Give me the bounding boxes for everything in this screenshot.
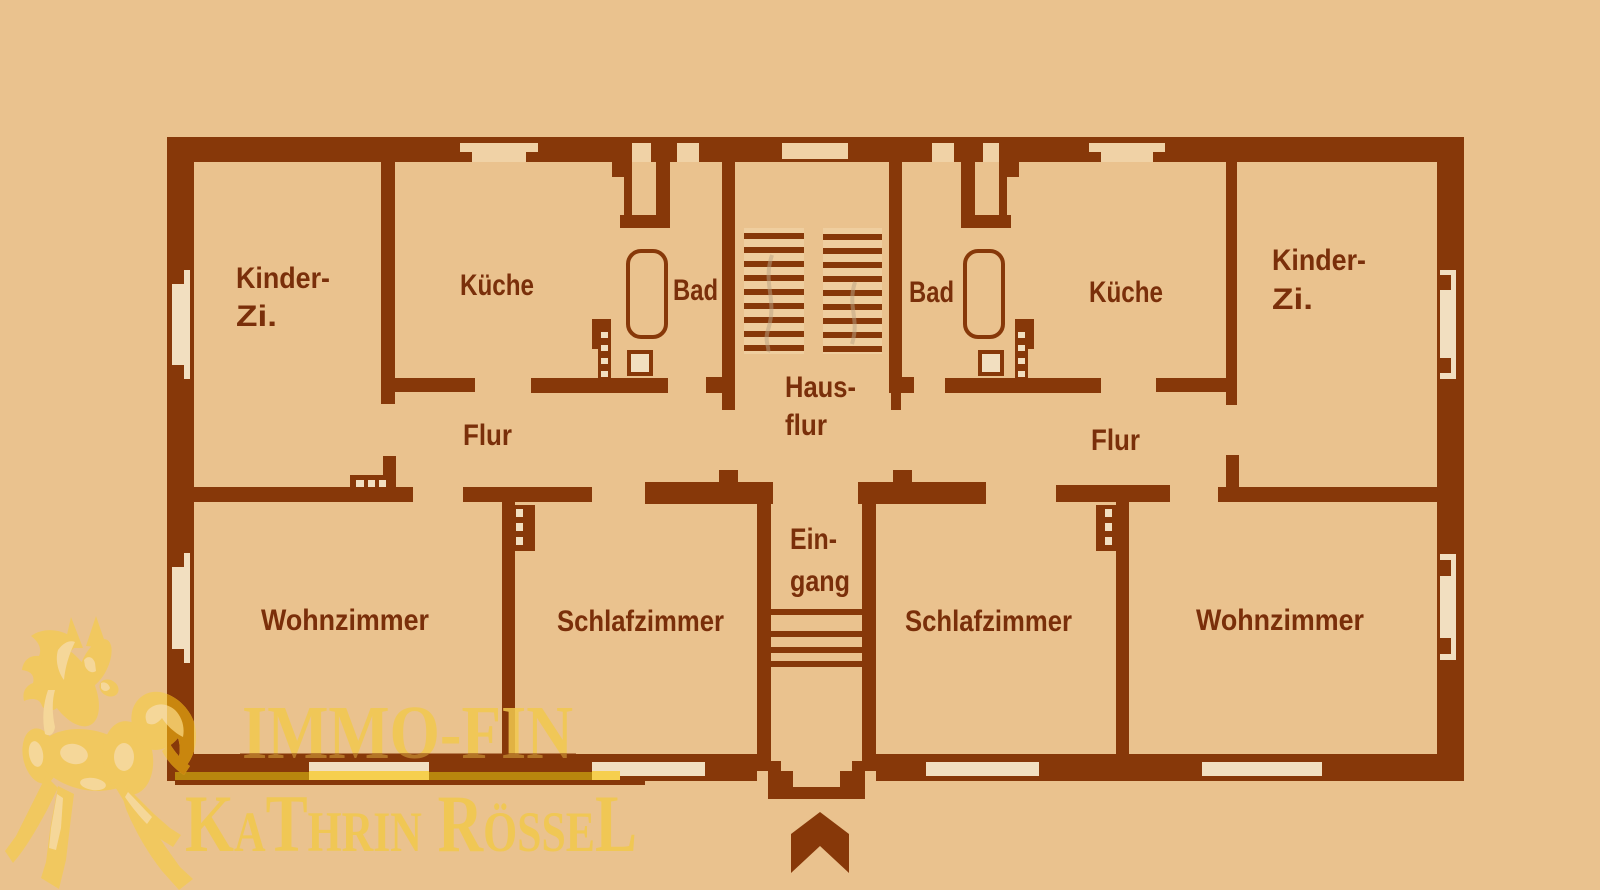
svg-text:Zi.: Zi. (1272, 283, 1313, 316)
svg-text:Wohnzimmer: Wohnzimmer (1196, 604, 1364, 637)
svg-text:Zi.: Zi. (236, 300, 277, 333)
svg-text:IMMO-FIN: IMMO-FIN (242, 691, 573, 775)
svg-text:Flur: Flur (463, 419, 512, 452)
svg-text:Kinder-: Kinder- (236, 262, 330, 295)
svg-text:Schlafzimmer: Schlafzimmer (557, 605, 724, 638)
svg-text:Ein-: Ein- (790, 523, 837, 556)
svg-text:Bad: Bad (673, 274, 718, 307)
svg-text:Küche: Küche (1089, 276, 1163, 309)
svg-text:flur: flur (785, 409, 827, 442)
svg-text:Flur: Flur (1091, 424, 1140, 457)
svg-text:KaThrin RösseL: KaThrin RösseL (185, 778, 637, 869)
svg-text:Bad: Bad (909, 276, 954, 309)
svg-text:Küche: Küche (460, 269, 534, 302)
svg-text:gang: gang (790, 565, 850, 598)
svg-text:Wohnzimmer: Wohnzimmer (261, 604, 429, 637)
svg-text:Haus-: Haus- (785, 371, 856, 404)
svg-text:Kinder-: Kinder- (1272, 244, 1366, 277)
svg-text:Schlafzimmer: Schlafzimmer (905, 605, 1072, 638)
